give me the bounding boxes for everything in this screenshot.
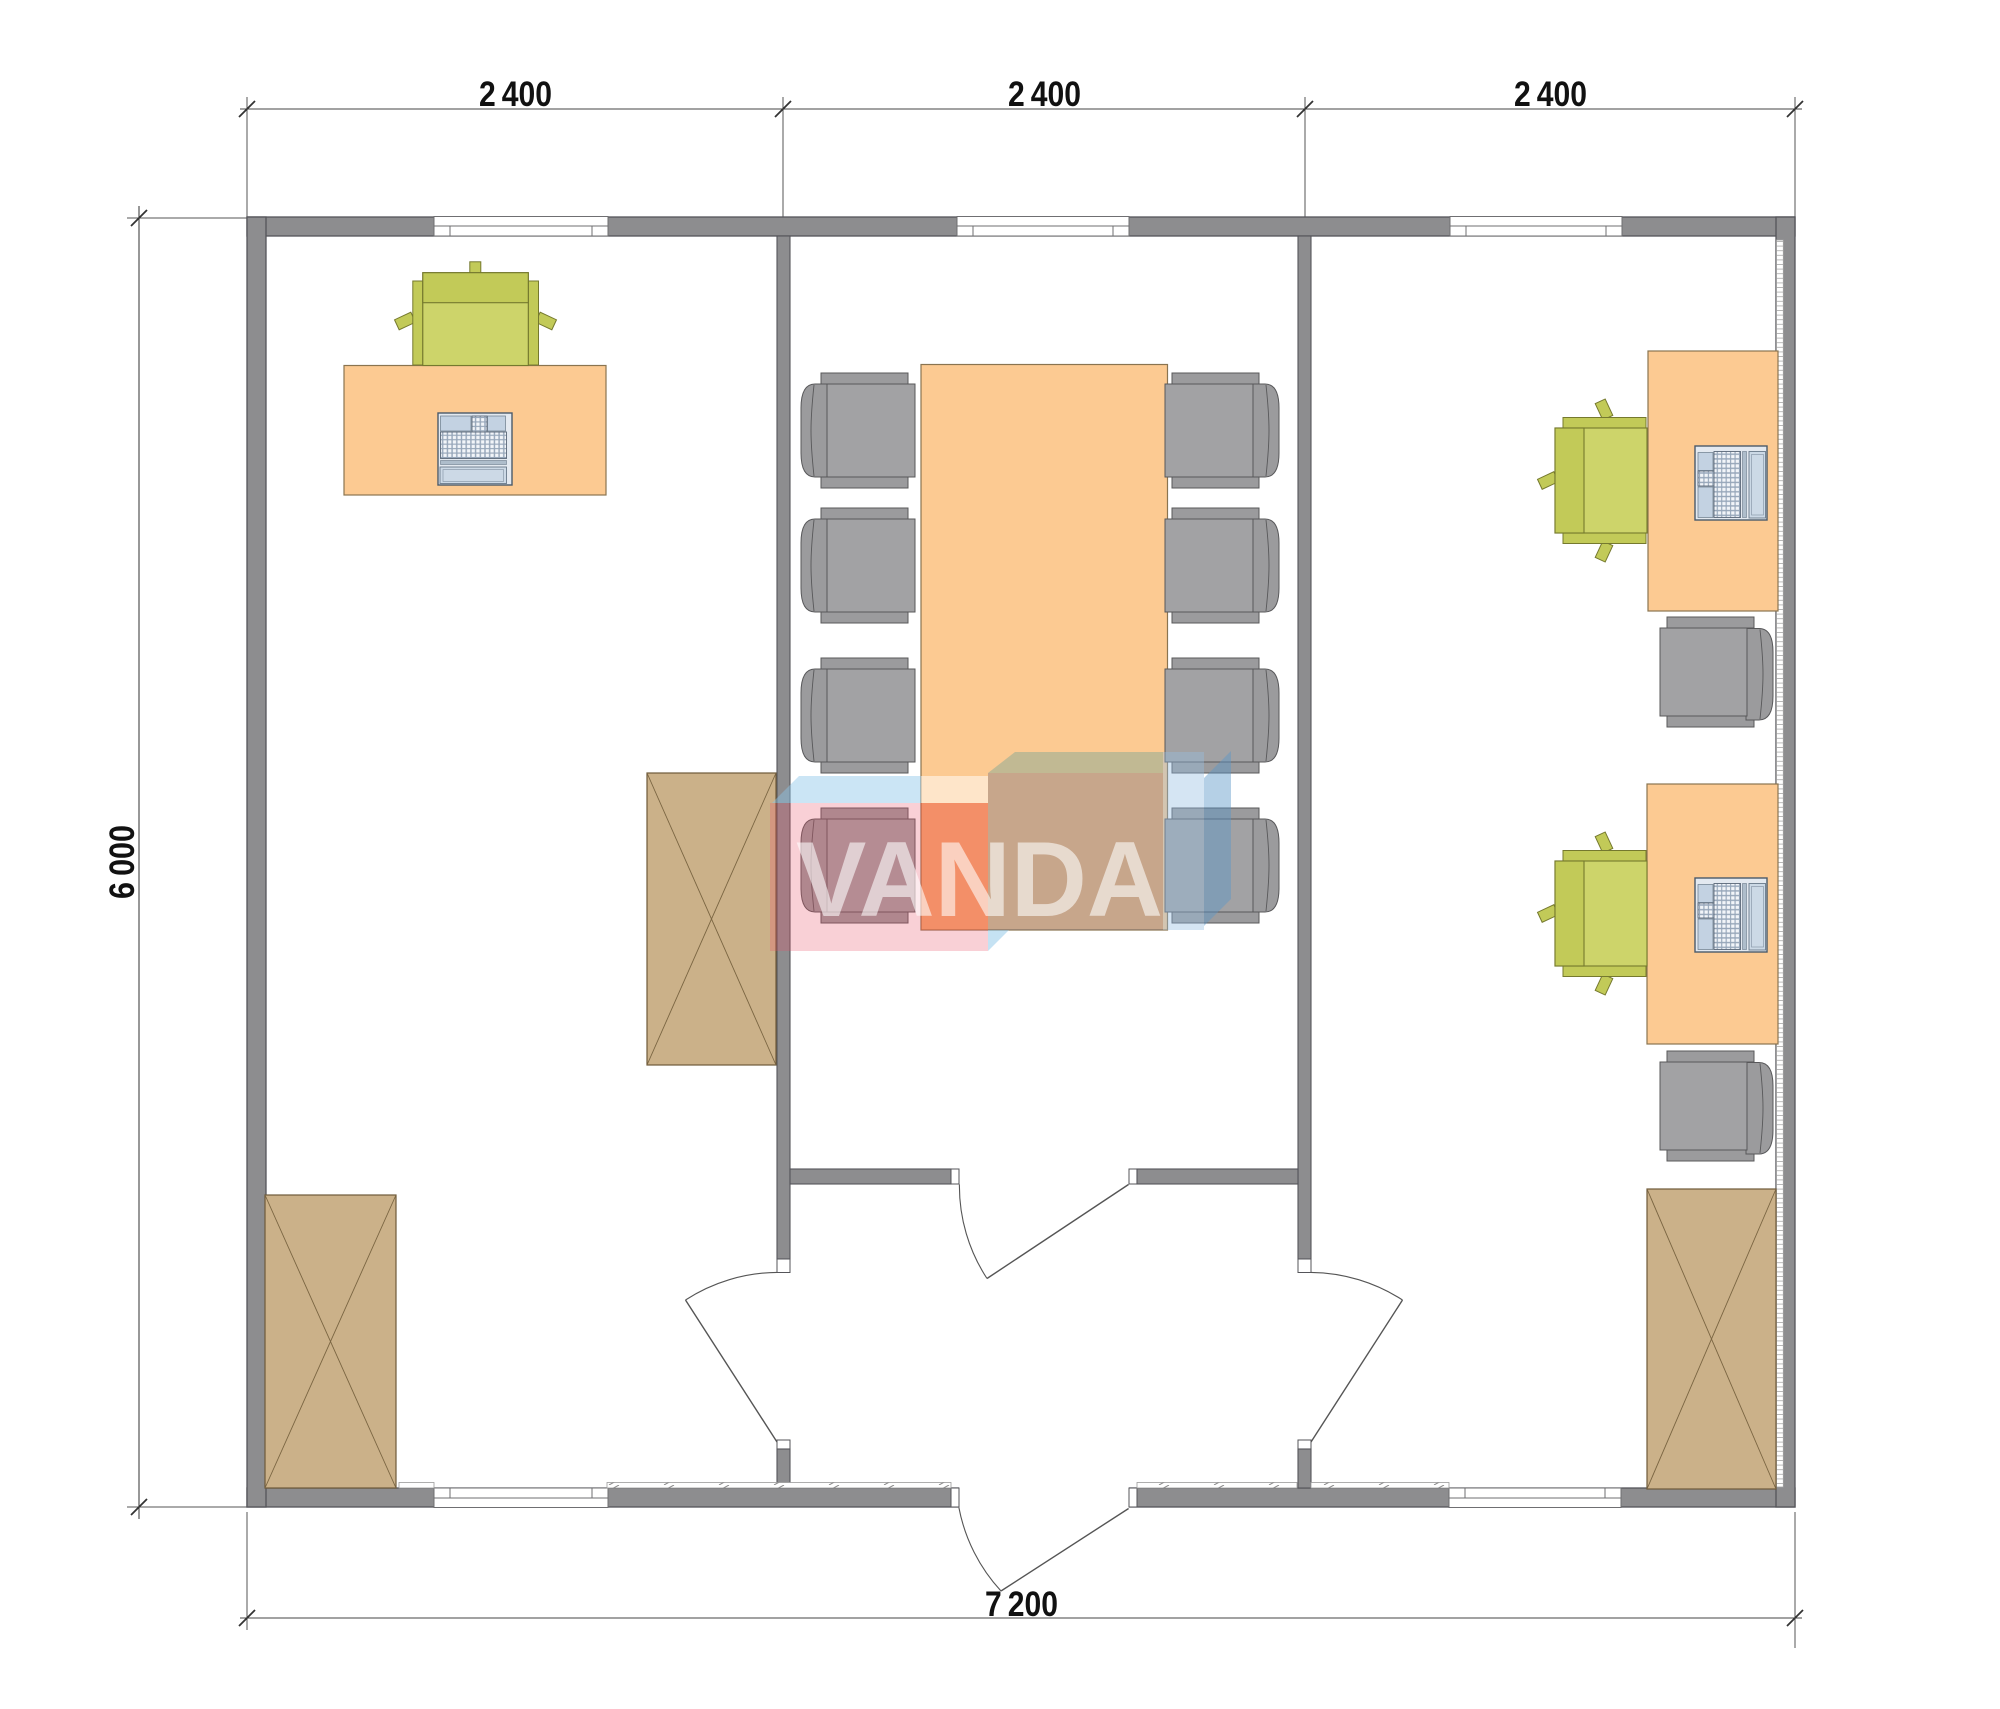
svg-text:2 400: 2 400 [479,75,552,114]
svg-text:VANDA: VANDA [796,819,1163,939]
svg-text:2 400: 2 400 [1514,75,1587,114]
svg-text:7 200: 7 200 [985,1585,1058,1624]
svg-text:6 000: 6 000 [103,825,142,899]
svg-text:2 400: 2 400 [1008,75,1081,114]
